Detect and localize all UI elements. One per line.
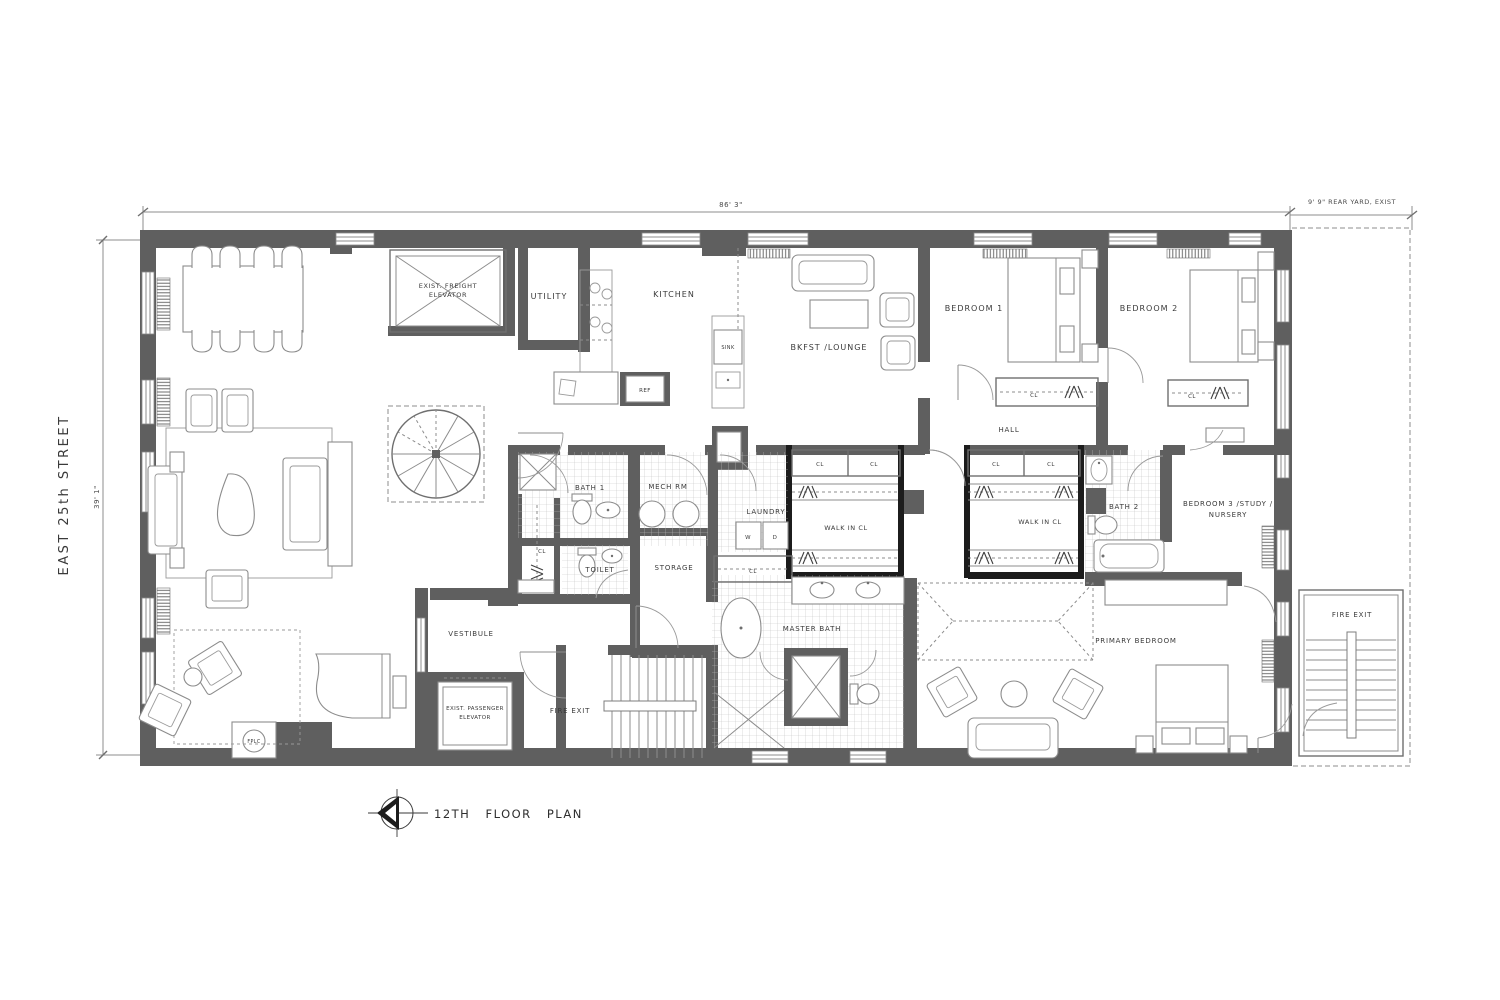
fire-exit-right: FIRE EXIT — [1299, 590, 1403, 756]
floor-plan-drawing: 86' 3" 9' 9" REAR YARD, EXIST 39' 1" EAS… — [0, 0, 1500, 1000]
toilet — [1088, 516, 1095, 534]
piano-bench — [393, 676, 406, 708]
living-area — [148, 389, 352, 578]
closet-label: CL — [870, 462, 878, 468]
room-label-bedroom3-2: NURSERY — [1209, 511, 1247, 519]
radiator — [983, 249, 1027, 258]
nightstand — [1258, 342, 1274, 360]
kitchen-island — [554, 372, 618, 404]
closet-label: CL — [1030, 393, 1038, 399]
closet-label: CL — [992, 462, 1000, 468]
room-label-bedroom1: BEDROOM 1 — [945, 304, 1003, 313]
radiator — [1262, 640, 1274, 682]
closet-label: CL — [749, 569, 757, 575]
radiator — [157, 278, 170, 330]
coffee-table — [810, 300, 868, 328]
room-label-laundry: LAUNDRY — [747, 508, 786, 516]
burner — [590, 317, 600, 327]
drawing-title: 12TH FLOOR PLAN — [434, 807, 583, 821]
closet-label: CL — [1188, 394, 1196, 400]
dryer-label: D — [773, 535, 778, 541]
mech-tank — [673, 501, 699, 527]
room-label-bedroom3-1: BEDROOM 3 /STUDY / — [1183, 500, 1273, 508]
closet-label: CL — [538, 549, 546, 555]
console — [328, 442, 352, 566]
fire-exit-left: FIRE EXIT — [550, 655, 702, 758]
dim-rear-yard: 9' 9" REAR YARD, EXIST — [1308, 198, 1396, 206]
radiator — [748, 249, 790, 258]
room-label-bath1: BATH 1 — [575, 484, 605, 492]
room-label-pass-elev-1: EXIST. PASSENGER — [446, 706, 504, 712]
room-label-fire-exit-left: FIRE EXIT — [550, 707, 590, 715]
room-label-bkfst: BKFST /LOUNGE — [791, 343, 868, 352]
coffee-table — [217, 474, 254, 536]
closet-bedroom1: CL — [996, 378, 1098, 406]
dining-table — [183, 266, 303, 332]
tray-ceiling — [918, 583, 1093, 660]
primary-bedroom: PRIMARY BEDROOM — [918, 580, 1292, 758]
room-label-hall: HALL — [998, 426, 1019, 434]
nightstand — [1230, 736, 1247, 753]
north-arrow-icon — [368, 789, 428, 837]
stair-handrail — [604, 701, 696, 711]
room-label-wic2: WALK IN CL — [1018, 518, 1061, 526]
walk-in-closet-2: CL CL WALK IN CL — [968, 450, 1080, 566]
room-label-bath2: BATH 2 — [1109, 503, 1139, 511]
stair-handrail — [1347, 632, 1356, 738]
double-vanity — [792, 577, 904, 604]
room-label-wic1: WALK IN CL — [824, 524, 867, 532]
nightstand — [1082, 344, 1098, 362]
room-label-kitchen: KITCHEN — [653, 290, 695, 299]
bath-sink — [1086, 456, 1112, 484]
side-table — [1001, 681, 1027, 707]
side-table — [184, 668, 202, 686]
radiator — [157, 378, 170, 426]
lounge-area — [138, 570, 406, 744]
bkfst-lounge: BKFST /LOUNGE — [791, 255, 915, 370]
room-label-storage: STORAGE — [655, 564, 694, 572]
dim-depth: 39' 1" — [93, 485, 101, 509]
ref-label: REF — [639, 388, 651, 394]
vestibule: VESTIBULE EXIST. PASSENGER ELEVATOR — [426, 606, 678, 758]
closet-bedroom2: CL — [1168, 380, 1248, 406]
washer-label: W — [745, 535, 751, 541]
sink-label: SINK — [721, 345, 735, 351]
radiator — [1167, 249, 1210, 258]
toilet — [578, 548, 596, 555]
freight-elevator: EXIST. FREIGHT ELEVATOR — [390, 250, 506, 332]
room-label-master-bath: MASTER BATH — [783, 625, 841, 633]
room-label-toilet: TOILET — [584, 566, 614, 574]
closet-label: CL — [816, 462, 824, 468]
room-label-vestibule: VESTIBULE — [448, 630, 493, 638]
room-label-primary: PRIMARY BEDROOM — [1095, 637, 1176, 645]
street-label: EAST 25th STREET — [57, 414, 72, 575]
room-label-pass-elev-2: ELEVATOR — [459, 715, 490, 721]
radiator — [1262, 526, 1274, 568]
grand-piano — [316, 654, 390, 718]
nightstand — [1258, 252, 1274, 270]
nightstand — [1082, 250, 1098, 268]
title-block: 12TH FLOOR PLAN — [368, 789, 583, 837]
kitchen-area: UTILITY KITCHEN REF SINK — [531, 248, 744, 408]
spiral-stair — [388, 406, 484, 502]
burner — [590, 283, 600, 293]
room-label-freight-1: EXIST. FREIGHT — [419, 282, 478, 290]
radiator — [157, 588, 170, 634]
sofa — [792, 255, 874, 291]
closet-label: CL — [1047, 462, 1055, 468]
bedroom-2: BEDROOM 2 CL — [1108, 252, 1274, 406]
dresser — [1105, 580, 1227, 605]
dim-width: 86' 3" — [719, 201, 743, 209]
room-label-bedroom2: BEDROOM 2 — [1120, 304, 1178, 313]
bedroom-1: BEDROOM 1 CL — [945, 250, 1098, 406]
walk-in-closet-1: CL CL WALK IN CL — [792, 450, 965, 566]
room-label-mech: MECH RM — [648, 483, 687, 491]
burner — [602, 323, 612, 333]
room-label-fire-exit-right: FIRE EXIT — [1332, 611, 1372, 619]
room-label-freight-2: ELEVATOR — [429, 291, 467, 299]
dining-area — [183, 246, 303, 352]
burner — [602, 289, 612, 299]
nightstand — [1136, 736, 1153, 753]
room-label-utility: UTILITY — [531, 292, 568, 301]
dresser — [1206, 428, 1244, 442]
mech-tank — [639, 501, 665, 527]
